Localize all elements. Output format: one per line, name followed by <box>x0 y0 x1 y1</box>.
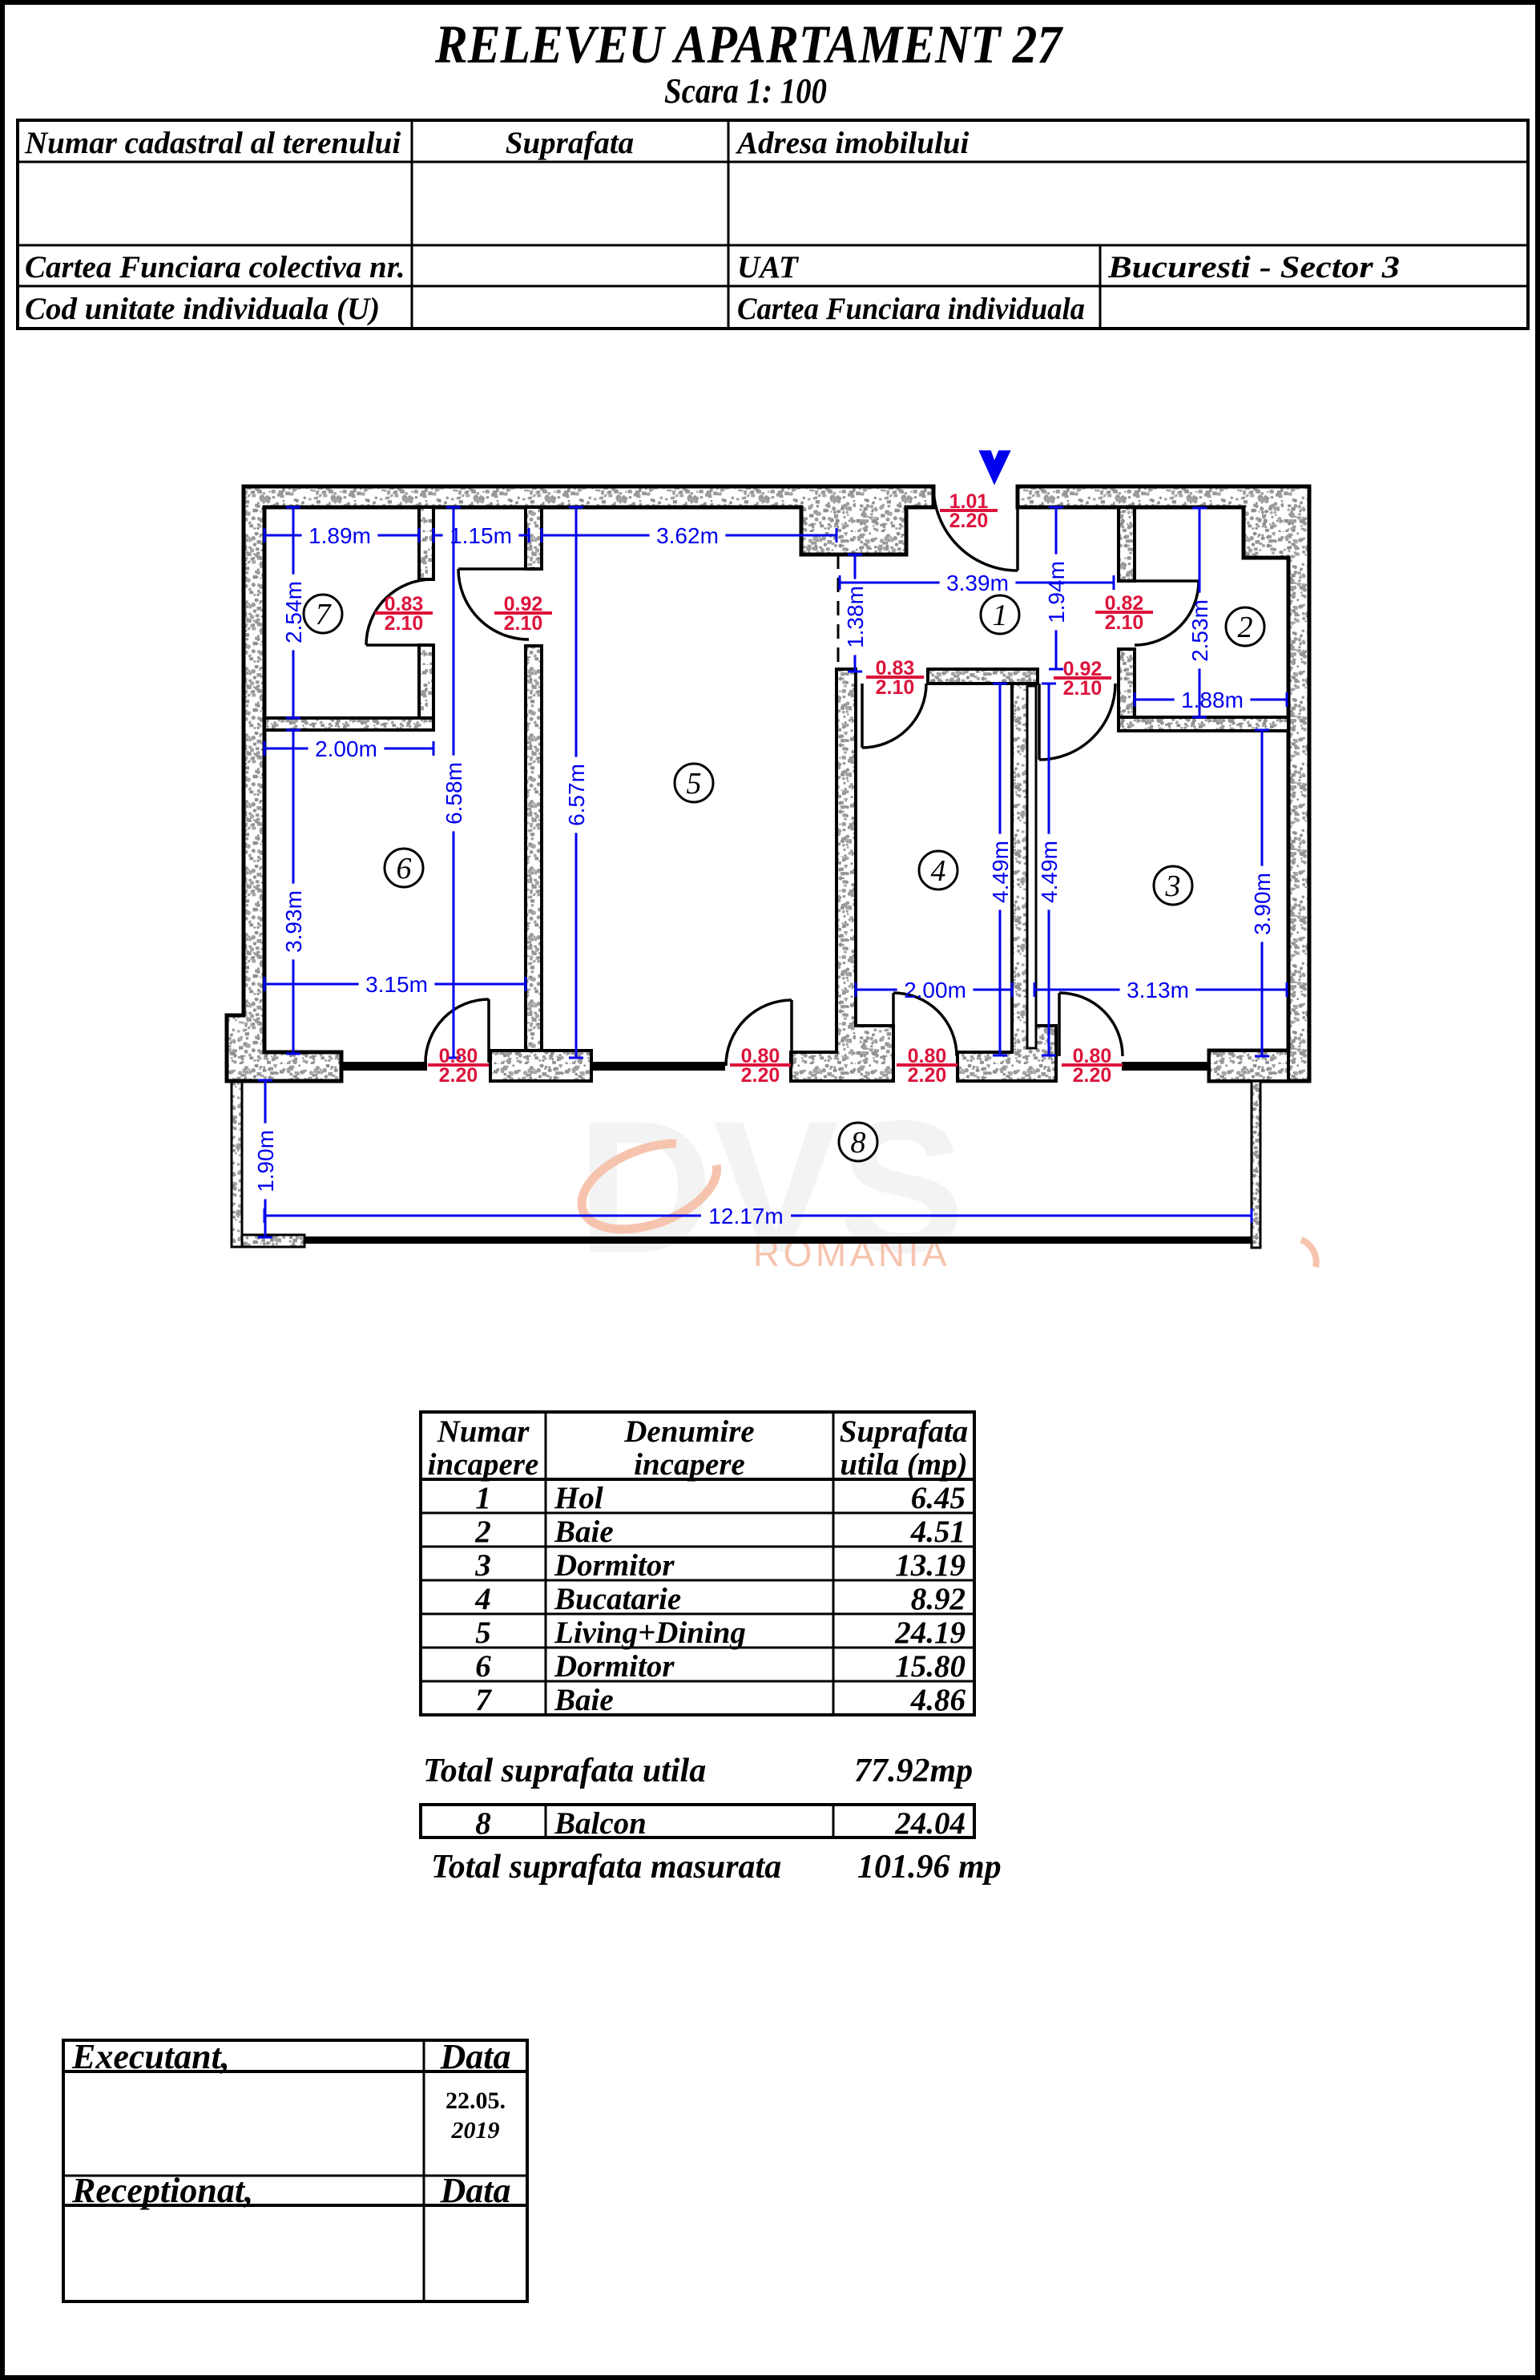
svg-text:13.19: 13.19 <box>895 1548 966 1583</box>
svg-text:Balcon: Balcon <box>554 1806 647 1841</box>
svg-text:15.80: 15.80 <box>895 1649 966 1684</box>
svg-text:7: 7 <box>475 1683 492 1717</box>
svg-text:1.90m: 1.90m <box>253 1130 278 1192</box>
svg-text:2.00m: 2.00m <box>904 978 966 1002</box>
svg-text:3.62m: 3.62m <box>656 523 719 548</box>
svg-text:Cartea Funciara colectiva nr.: Cartea Funciara colectiva nr. <box>25 250 405 284</box>
svg-text:3.39m: 3.39m <box>946 571 1009 595</box>
svg-text:2.10: 2.10 <box>876 676 915 699</box>
svg-text:UAT: UAT <box>737 250 800 284</box>
svg-text:3.93m: 3.93m <box>281 890 306 953</box>
svg-text:3.90m: 3.90m <box>1250 873 1275 935</box>
svg-text:Hol: Hol <box>554 1481 603 1515</box>
svg-text:2.20: 2.20 <box>908 1064 947 1087</box>
svg-text:5: 5 <box>687 767 702 801</box>
svg-text:2.20: 2.20 <box>439 1064 478 1087</box>
svg-text:4.49m: 4.49m <box>988 841 1013 903</box>
svg-text:Data: Data <box>440 2171 511 2210</box>
svg-text:1.15m: 1.15m <box>450 523 512 548</box>
svg-text:6.58m: 6.58m <box>441 762 466 825</box>
svg-text:Denumire: Denumire <box>623 1414 755 1449</box>
svg-text:6: 6 <box>475 1649 491 1684</box>
svg-text:Adresa imobilului: Adresa imobilului <box>735 126 969 160</box>
svg-text:2.54m: 2.54m <box>281 581 306 643</box>
svg-text:1.38m: 1.38m <box>843 586 868 648</box>
svg-text:1: 1 <box>475 1481 491 1515</box>
svg-text:Dormitor: Dormitor <box>554 1649 675 1684</box>
svg-text:2.20: 2.20 <box>949 510 989 532</box>
svg-text:8: 8 <box>475 1806 491 1841</box>
svg-text:2.53m: 2.53m <box>1187 599 1212 662</box>
svg-text:Data: Data <box>440 2037 511 2076</box>
svg-text:24.04: 24.04 <box>894 1806 966 1841</box>
svg-text:Numar cadastral al terenului: Numar cadastral al terenului <box>24 126 401 160</box>
svg-text:3: 3 <box>1165 869 1181 903</box>
svg-text:2: 2 <box>474 1515 491 1549</box>
svg-text:Bucuresti - Sector 3: Bucuresti - Sector 3 <box>1107 250 1400 284</box>
svg-text:Living+Dining: Living+Dining <box>554 1616 746 1650</box>
svg-text:6: 6 <box>397 852 412 885</box>
svg-text:3.15m: 3.15m <box>365 972 428 997</box>
svg-text:4.51: 4.51 <box>910 1515 966 1549</box>
svg-text:6.57m: 6.57m <box>564 764 589 826</box>
svg-text:8.92: 8.92 <box>911 1582 966 1616</box>
svg-text:2.20: 2.20 <box>1073 1064 1112 1087</box>
svg-text:6.45: 6.45 <box>911 1481 966 1515</box>
svg-text:incapere: incapere <box>428 1447 539 1482</box>
svg-text:8: 8 <box>851 1126 866 1160</box>
svg-text:12.17m: 12.17m <box>708 1204 783 1228</box>
svg-text:2.10: 2.10 <box>504 612 543 635</box>
svg-text:Baie: Baie <box>554 1683 614 1717</box>
svg-text:Executant,: Executant, <box>71 2037 230 2076</box>
svg-text:2.00m: 2.00m <box>315 736 377 761</box>
svg-text:4: 4 <box>474 1582 491 1616</box>
svg-text:Suprafata: Suprafata <box>840 1414 968 1449</box>
svg-text:RELEVEU APARTAMENT 27: RELEVEU APARTAMENT 27 <box>434 14 1064 75</box>
svg-text:4.86: 4.86 <box>910 1683 966 1717</box>
svg-text:Cartea Funciara individuala: Cartea Funciara individuala <box>737 292 1085 326</box>
svg-text:4: 4 <box>931 854 946 888</box>
svg-text:Numar: Numar <box>437 1414 530 1449</box>
svg-text:Total suprafata utila: Total suprafata utila <box>423 1753 706 1789</box>
svg-text:1: 1 <box>993 599 1008 632</box>
svg-text:22.05.: 22.05. <box>445 2088 506 2114</box>
svg-text:utila (mp): utila (mp) <box>840 1447 967 1482</box>
svg-text:2019: 2019 <box>451 2117 500 2144</box>
svg-text:2: 2 <box>1238 611 1253 644</box>
svg-text:Scara 1: 100: Scara 1: 100 <box>664 71 827 111</box>
svg-text:24.19: 24.19 <box>894 1616 966 1650</box>
svg-text:2.10: 2.10 <box>1063 677 1103 700</box>
svg-text:Dormitor: Dormitor <box>554 1548 675 1583</box>
svg-text:4.49m: 4.49m <box>1037 841 1062 903</box>
svg-text:1.89m: 1.89m <box>308 523 371 548</box>
svg-text:Cod unitate individuala (U): Cod unitate individuala (U) <box>25 292 380 326</box>
svg-text:2.10: 2.10 <box>1105 611 1144 634</box>
svg-text:3: 3 <box>474 1548 491 1583</box>
svg-text:101.96 mp: 101.96 mp <box>857 1849 1002 1886</box>
svg-text:Bucatarie: Bucatarie <box>554 1582 681 1616</box>
svg-text:incapere: incapere <box>634 1447 745 1482</box>
svg-text:Baie: Baie <box>554 1515 614 1549</box>
svg-text:1.88m: 1.88m <box>1181 688 1244 712</box>
svg-text:7: 7 <box>316 598 333 631</box>
svg-text:5: 5 <box>475 1616 491 1650</box>
svg-text:3.13m: 3.13m <box>1127 978 1189 1002</box>
svg-text:Receptionat,: Receptionat, <box>71 2171 253 2210</box>
svg-text:2.20: 2.20 <box>741 1064 780 1087</box>
svg-text:Suprafata: Suprafata <box>506 126 634 160</box>
svg-text:2.10: 2.10 <box>385 612 424 635</box>
svg-text:Total suprafata masurata: Total suprafata masurata <box>431 1849 781 1886</box>
svg-text:1.94m: 1.94m <box>1044 561 1069 623</box>
svg-text:77.92mp: 77.92mp <box>854 1753 973 1789</box>
